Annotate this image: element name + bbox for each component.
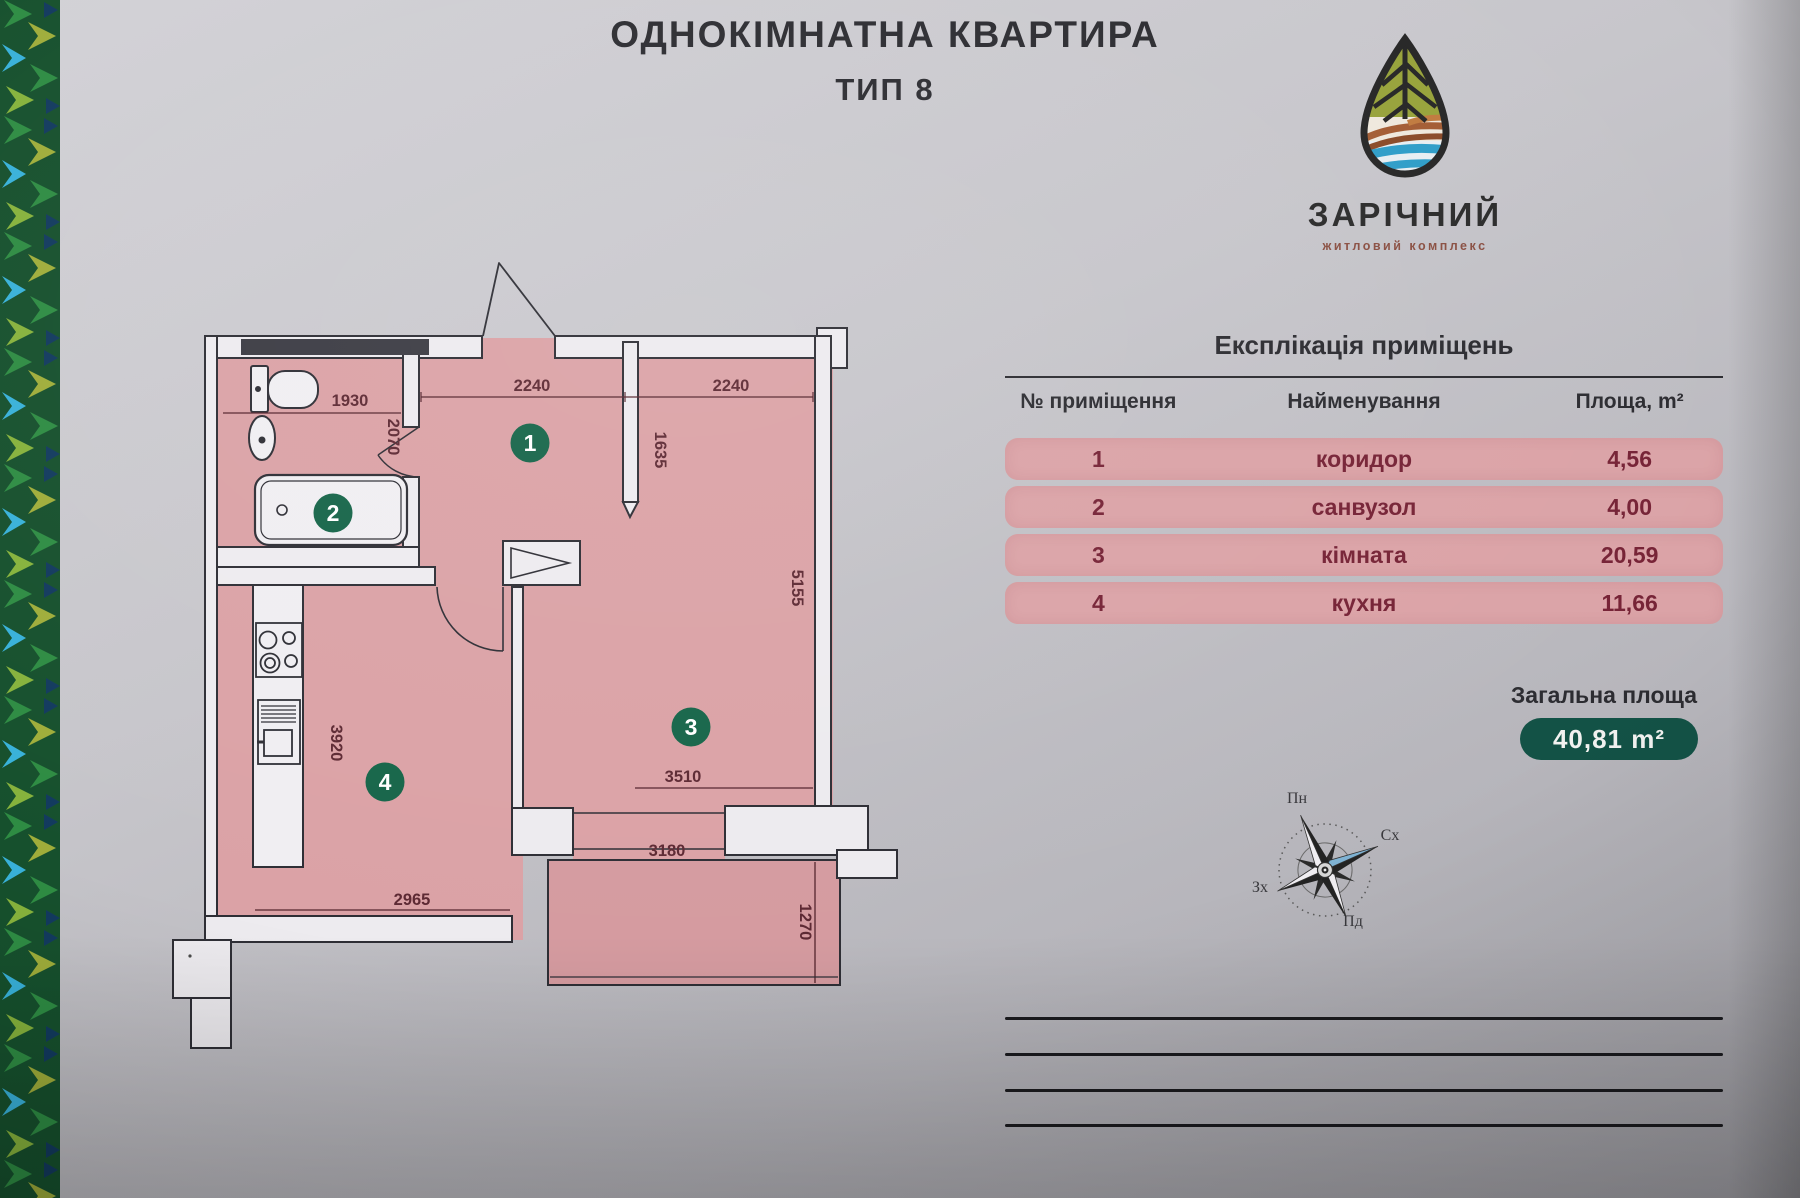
brand-name: ЗАРІЧНИЙ	[1305, 196, 1505, 234]
table-rows: 1 коридор 4,56 2 санвузол 4,00 3 кімната…	[1005, 438, 1723, 624]
page-subtitle: ТИП 8	[355, 72, 1415, 108]
signature-line	[1005, 1053, 1723, 1056]
page-title-block: ОДНОКІМНАТНА КВАРТИРА ТИП 8	[355, 14, 1415, 108]
badge-corridor-number: 1	[524, 430, 537, 456]
dim-1930: 1930	[332, 392, 369, 410]
compass-south-label: Пд	[1343, 913, 1363, 930]
dim-2240-room: 2240	[713, 377, 750, 395]
signature-line	[1005, 1089, 1723, 1092]
drop-leaf-logo-icon	[1358, 33, 1452, 183]
table-row: 3 кімната 20,59	[1005, 534, 1723, 576]
brand-subtitle: житловий комплекс	[1305, 239, 1505, 253]
stove	[256, 623, 302, 677]
page-content: ОДНОКІМНАТНА КВАРТИРА ТИП 8	[0, 0, 1800, 1198]
room-area: 20,59	[1536, 542, 1723, 569]
room-area: 4,56	[1536, 446, 1723, 473]
floorplan: 1930 2070 2240 2240 1635 5155 3920 3510 …	[165, 250, 905, 1050]
header-rule	[1005, 376, 1723, 378]
room-name: коридор	[1192, 446, 1537, 473]
total-area-badge: 40,81 m²	[1520, 718, 1698, 760]
signature-line	[1005, 1017, 1723, 1020]
badge-room-number: 3	[685, 714, 698, 740]
dim-2240-corridor: 2240	[514, 377, 551, 395]
dim-3920: 3920	[327, 725, 345, 762]
room-number: 3	[1005, 542, 1192, 569]
photographed-floorplan-sheet: ОДНОКІМНАТНА КВАРТИРА ТИП 8	[0, 0, 1800, 1198]
column-header-name: Найменування	[1192, 390, 1537, 414]
room-area: 11,66	[1536, 590, 1723, 617]
column-header-area: Площа, m²	[1536, 390, 1723, 414]
room-name: санвузол	[1192, 494, 1537, 521]
dim-5155: 5155	[788, 570, 806, 607]
room-number: 4	[1005, 590, 1192, 617]
compass-star	[1253, 792, 1399, 939]
table-row: 1 коридор 4,56	[1005, 438, 1723, 480]
room-number: 1	[1005, 446, 1192, 473]
badge-room: 3	[672, 708, 711, 747]
table-row: 2 санвузол 4,00	[1005, 486, 1723, 528]
vent-shaft	[503, 541, 580, 585]
explication-section: Експлікація приміщень № приміщення Найме…	[1005, 330, 1723, 800]
room-number: 2	[1005, 494, 1192, 521]
dim-1635: 1635	[651, 432, 669, 469]
brand-logo: ЗАРІЧНИЙ житловий комплекс	[1305, 33, 1505, 253]
dust-speck	[188, 954, 191, 957]
entrance-door	[483, 263, 555, 336]
compass-rose: Пн Сх Зх Пд	[1235, 782, 1415, 952]
room-name: кімната	[1192, 542, 1537, 569]
dim-3510: 3510	[665, 768, 702, 786]
room-area: 4,00	[1536, 494, 1723, 521]
badge-bathroom-number: 2	[327, 500, 340, 526]
room-name: кухня	[1192, 590, 1537, 617]
dim-1270: 1270	[796, 904, 814, 941]
compass-east-label: Сх	[1381, 827, 1400, 844]
compass-west-label: Зх	[1252, 879, 1268, 896]
kitchen-sink	[257, 700, 300, 764]
page-title: ОДНОКІМНАТНА КВАРТИРА	[355, 14, 1415, 56]
column-header-number: № приміщення	[1005, 390, 1192, 414]
badge-kitchen-number: 4	[379, 769, 392, 795]
toilet	[251, 366, 318, 412]
total-area-label: Загальна площа	[1005, 682, 1697, 709]
sink	[249, 416, 275, 460]
dim-2965: 2965	[394, 891, 431, 909]
signature-line	[1005, 1124, 1723, 1127]
badge-bathroom: 2	[314, 494, 353, 533]
badge-kitchen: 4	[366, 763, 405, 802]
bathroom-exterior-wall	[241, 339, 429, 355]
dim-2070: 2070	[384, 419, 402, 456]
dim-3180: 3180	[649, 842, 686, 860]
compass-north-label: Пн	[1287, 790, 1308, 807]
explication-title: Експлікація приміщень	[1005, 330, 1723, 361]
badge-corridor: 1	[511, 424, 550, 463]
table-header-row: № приміщення Найменування Площа, m²	[1005, 390, 1723, 414]
table-row: 4 кухня 11,66	[1005, 582, 1723, 624]
